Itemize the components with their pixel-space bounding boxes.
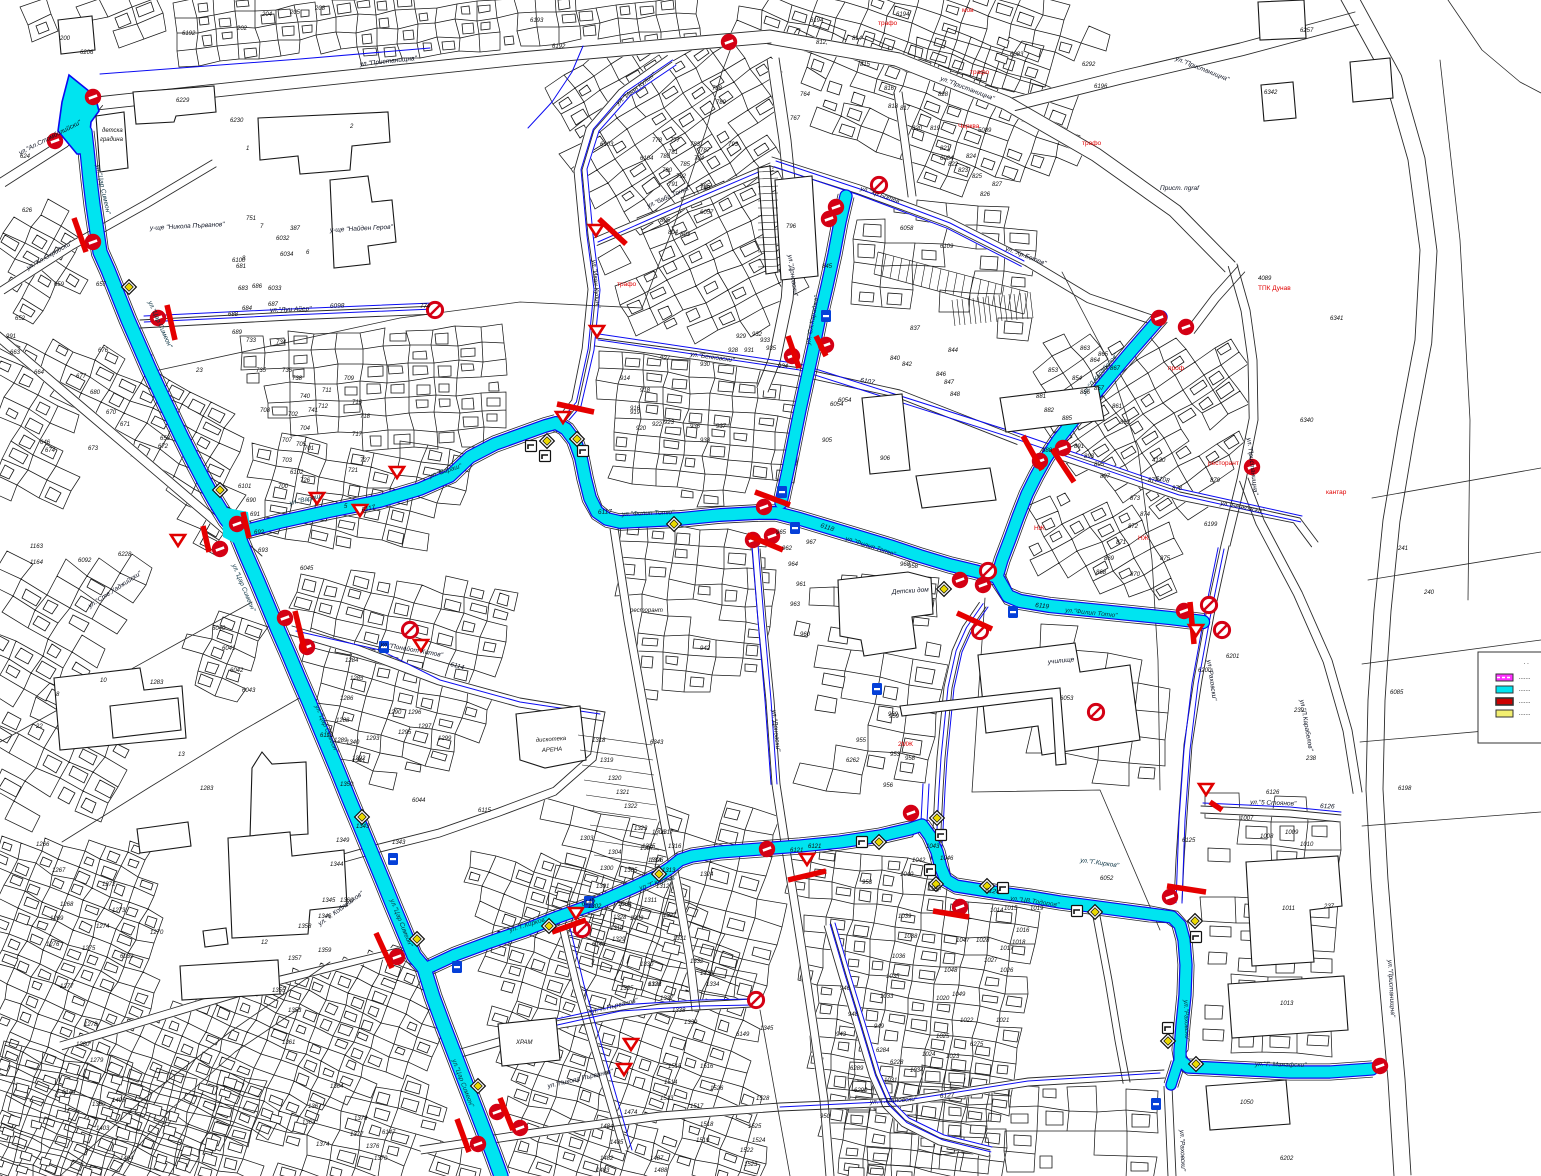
svg-text:6196: 6196 [1094, 84, 1108, 90]
svg-text:1482: 1482 [600, 1156, 614, 1162]
svg-text:820: 820 [912, 126, 923, 132]
svg-text:6284: 6284 [876, 1048, 890, 1054]
svg-text:200: 200 [59, 36, 71, 42]
svg-text:680: 680 [90, 390, 101, 396]
svg-text:741: 741 [308, 408, 318, 414]
svg-text:6230: 6230 [230, 118, 244, 124]
svg-text:Черква: Черква [958, 123, 980, 130]
svg-text:788: 788 [712, 86, 723, 92]
svg-text:.......: ....... [1519, 711, 1531, 717]
svg-text:4089: 4089 [1258, 276, 1272, 282]
svg-text:664: 664 [34, 370, 45, 376]
svg-text:1403: 1403 [96, 1126, 110, 1132]
svg-text:6343: 6343 [650, 740, 664, 746]
svg-text:824: 824 [966, 154, 977, 160]
svg-text:942: 942 [700, 646, 711, 652]
svg-text:774: 774 [420, 304, 431, 310]
svg-text:927: 927 [660, 356, 671, 362]
svg-text:1326: 1326 [650, 858, 664, 864]
svg-text:241: 241 [1397, 546, 1408, 552]
svg-text:1283: 1283 [200, 786, 214, 792]
svg-text:6200: 6200 [1198, 668, 1212, 674]
svg-text:6041: 6041 [222, 646, 235, 652]
svg-text:1405: 1405 [112, 1098, 126, 1104]
svg-text:733: 733 [246, 338, 257, 344]
svg-text:1485: 1485 [610, 1140, 624, 1146]
svg-text:2МЖ: 2МЖ [898, 741, 913, 748]
svg-text:751: 751 [246, 216, 256, 222]
svg-text:1523: 1523 [744, 1162, 758, 1168]
svg-text:821: 821 [940, 146, 950, 152]
svg-text:1: 1 [246, 146, 249, 152]
svg-text:848: 848 [950, 392, 961, 398]
svg-text:692: 692 [254, 530, 265, 536]
svg-text:1330: 1330 [640, 962, 654, 968]
svg-text:893: 893 [1084, 454, 1095, 460]
svg-text:677: 677 [76, 374, 87, 380]
svg-text:879: 879 [1210, 478, 1221, 484]
svg-text:870: 870 [1130, 572, 1141, 578]
svg-text:6098: 6098 [330, 302, 345, 310]
svg-text:793: 793 [728, 142, 739, 148]
svg-text:1329: 1329 [612, 937, 626, 943]
svg-text:1332: 1332 [690, 959, 704, 965]
svg-text:1046: 1046 [940, 856, 954, 862]
svg-text:1526: 1526 [710, 1086, 724, 1092]
svg-text:Прист. пgraf: Прист. пgraf [1160, 185, 1200, 192]
svg-text:740: 740 [300, 394, 311, 400]
svg-text:1274: 1274 [96, 924, 110, 930]
svg-text:6039: 6039 [120, 954, 134, 960]
svg-text:819: 819 [930, 126, 941, 132]
svg-text:673: 673 [88, 446, 99, 452]
svg-text:1519: 1519 [696, 1138, 710, 1144]
svg-text:1284: 1284 [345, 658, 359, 664]
svg-text:1318: 1318 [592, 738, 606, 744]
svg-text:778: 778 [652, 138, 663, 144]
svg-text:933: 933 [760, 338, 771, 344]
svg-text:764: 764 [800, 92, 811, 98]
svg-text:716: 716 [352, 400, 363, 406]
svg-text:239: 239 [1293, 708, 1305, 714]
svg-text:818: 818 [888, 104, 899, 110]
svg-text:738: 738 [292, 376, 303, 382]
svg-text:1377: 1377 [350, 1132, 364, 1138]
svg-text:6102: 6102 [290, 470, 304, 476]
svg-text:803: 803 [680, 232, 691, 238]
svg-text:967: 967 [806, 540, 817, 546]
svg-text:градина: градина [100, 137, 124, 143]
svg-text:22: 22 [35, 724, 43, 730]
svg-text:734: 734 [276, 340, 287, 346]
svg-text:1349: 1349 [336, 838, 350, 844]
svg-text:6292: 6292 [1082, 62, 1096, 68]
svg-text:874: 874 [1140, 512, 1151, 518]
svg-text:ул."Г. Манафски": ул."Г. Манафски" [1254, 1061, 1307, 1069]
svg-text:1308: 1308 [618, 902, 632, 908]
svg-text:6085: 6085 [1390, 690, 1404, 696]
svg-text:1011: 1011 [1282, 906, 1295, 912]
svg-text:6125: 6125 [1182, 838, 1196, 844]
svg-text:1376: 1376 [366, 1144, 380, 1150]
svg-text:1273: 1273 [112, 908, 126, 914]
svg-text:6290: 6290 [854, 1088, 868, 1094]
svg-text:1353: 1353 [288, 1008, 302, 1014]
svg-text:6127: 6127 [940, 1092, 955, 1100]
svg-text:1038: 1038 [904, 934, 918, 940]
svg-text:867: 867 [1110, 366, 1121, 372]
svg-text:918: 918 [640, 388, 651, 394]
svg-text:1343: 1343 [356, 824, 370, 830]
svg-text:238: 238 [1305, 756, 1317, 762]
svg-text:1022: 1022 [960, 1018, 974, 1024]
svg-text:1025: 1025 [936, 1034, 950, 1040]
svg-text:6341: 6341 [1330, 316, 1343, 322]
svg-text:931: 931 [744, 348, 754, 354]
svg-text:1010: 1010 [1300, 842, 1314, 848]
svg-text:205: 205 [289, 10, 301, 16]
svg-text:НЖ: НЖ [1034, 525, 1045, 532]
svg-text:871: 871 [1116, 540, 1126, 546]
svg-text:905: 905 [822, 438, 833, 444]
svg-text:1015: 1015 [1004, 906, 1018, 912]
svg-text:1367: 1367 [308, 1104, 322, 1110]
svg-text:1043: 1043 [926, 844, 940, 850]
svg-text:6044: 6044 [412, 798, 426, 804]
svg-text:1360: 1360 [340, 898, 354, 904]
svg-text:1295: 1295 [398, 730, 412, 736]
svg-text:6228: 6228 [118, 552, 132, 558]
svg-text:6058: 6058 [900, 226, 914, 232]
svg-text:.......: ....... [1519, 675, 1531, 681]
svg-text:387: 387 [290, 226, 301, 232]
svg-text:6053: 6053 [1060, 696, 1074, 702]
svg-text:626: 626 [22, 208, 33, 214]
svg-text:937: 937 [716, 424, 727, 430]
svg-text:856: 856 [1080, 390, 1091, 396]
svg-text:878: 878 [1172, 486, 1183, 492]
svg-text:6144: 6144 [62, 1090, 76, 1096]
svg-text:671: 671 [120, 422, 130, 428]
svg-text:1021: 1021 [996, 1018, 1009, 1024]
svg-text:1325: 1325 [642, 844, 656, 850]
svg-text:1338: 1338 [672, 1008, 686, 1014]
svg-text:1518: 1518 [700, 1122, 714, 1128]
svg-text:1322: 1322 [624, 804, 638, 810]
svg-text:6034: 6034 [280, 252, 294, 258]
svg-text:1049: 1049 [952, 992, 966, 998]
svg-text:6289: 6289 [850, 1066, 864, 1072]
svg-text:1296: 1296 [408, 710, 422, 716]
svg-text:1522: 1522 [740, 1148, 754, 1154]
svg-text:1378: 1378 [354, 1116, 368, 1122]
svg-text:963: 963 [790, 602, 801, 608]
svg-text:1404: 1404 [120, 1156, 134, 1162]
svg-text:1327: 1327 [663, 913, 677, 919]
svg-text:646: 646 [40, 440, 51, 446]
svg-text:1474: 1474 [624, 1110, 638, 1116]
svg-text:6192: 6192 [552, 44, 566, 50]
svg-text:950: 950 [820, 1114, 831, 1120]
svg-text:796: 796 [786, 224, 797, 230]
svg-text:865: 865 [1098, 352, 1109, 358]
svg-text:1303: 1303 [580, 836, 594, 842]
svg-text:1313: 1313 [662, 868, 676, 874]
svg-text:717: 717 [352, 432, 363, 438]
svg-text:6257: 6257 [1300, 28, 1314, 34]
svg-text:1016: 1016 [1016, 928, 1030, 934]
svg-text:1039: 1039 [898, 914, 912, 920]
svg-text:1488: 1488 [654, 1168, 668, 1174]
svg-text:мов: мов [962, 7, 974, 14]
svg-text:ресторант: ресторант [629, 608, 663, 614]
svg-text:1350: 1350 [340, 782, 354, 788]
svg-text:1266: 1266 [36, 842, 50, 848]
svg-text:1050: 1050 [1240, 1100, 1254, 1106]
svg-text:815: 815 [860, 62, 871, 68]
svg-text:трафо: трафо [970, 69, 990, 76]
svg-text:6101: 6101 [238, 484, 251, 490]
svg-text:795: 795 [700, 186, 711, 192]
svg-text:1343: 1343 [392, 840, 406, 846]
svg-text:1364: 1364 [330, 1084, 344, 1090]
svg-text:1031: 1031 [884, 1078, 897, 1084]
svg-text:6057: 6057 [700, 210, 714, 216]
svg-text:938: 938 [700, 438, 711, 444]
svg-text:трафо: трафо [1082, 140, 1102, 147]
svg-text:1036: 1036 [892, 954, 906, 960]
svg-text:1316: 1316 [668, 844, 682, 850]
svg-text:817: 817 [900, 106, 911, 112]
svg-text:6121: 6121 [808, 844, 821, 850]
svg-text:6340: 6340 [1300, 418, 1314, 424]
svg-text:5089: 5089 [978, 128, 992, 134]
svg-text:958: 958 [905, 756, 916, 762]
svg-text:823: 823 [958, 168, 969, 174]
svg-text:1374: 1374 [316, 1142, 330, 1148]
svg-text:961: 961 [796, 582, 806, 588]
svg-text:кантар: кантар [1326, 489, 1347, 496]
svg-text:1293: 1293 [366, 736, 380, 742]
svg-text:875: 875 [1160, 556, 1171, 562]
svg-text:6092: 6092 [78, 558, 92, 564]
svg-text:965: 965 [776, 530, 787, 536]
svg-text:6121: 6121 [790, 848, 803, 854]
svg-text:1275: 1275 [82, 946, 96, 952]
svg-text:1302: 1302 [588, 904, 602, 910]
svg-text:1300: 1300 [600, 866, 614, 872]
svg-text:1310: 1310 [610, 926, 624, 932]
svg-text:1345: 1345 [322, 898, 336, 904]
svg-text:6126: 6126 [1266, 790, 1280, 796]
svg-text:991: 991 [6, 334, 16, 340]
svg-text:672: 672 [158, 444, 169, 450]
svg-text:790: 790 [662, 168, 673, 174]
svg-text:6032: 6032 [276, 236, 290, 242]
svg-text:704: 704 [300, 426, 311, 432]
svg-text:1341: 1341 [352, 758, 365, 764]
svg-text:853: 853 [1048, 368, 1059, 374]
svg-text:1331: 1331 [673, 936, 686, 942]
svg-text:721: 721 [348, 468, 358, 474]
svg-text:869: 869 [1104, 556, 1115, 562]
svg-text:1277: 1277 [60, 984, 74, 990]
svg-text:1321: 1321 [616, 790, 629, 796]
svg-text:683: 683 [238, 286, 249, 292]
svg-text:946: 946 [840, 986, 851, 992]
svg-text:840: 840 [890, 356, 901, 362]
svg-text:1009: 1009 [1285, 830, 1299, 836]
svg-text:676: 676 [98, 348, 109, 354]
svg-text:1024: 1024 [922, 1052, 936, 1058]
svg-text:891: 891 [1074, 444, 1084, 450]
svg-text:735: 735 [256, 368, 267, 374]
svg-text:787: 787 [700, 148, 711, 154]
svg-text:845: 845 [822, 264, 833, 270]
svg-text:1007: 1007 [1240, 816, 1254, 822]
svg-text:1320: 1320 [608, 776, 622, 782]
svg-text:826: 826 [980, 192, 991, 198]
svg-text:863: 863 [1080, 346, 1091, 352]
svg-text:955: 955 [856, 738, 867, 744]
svg-text:1040: 1040 [900, 872, 914, 878]
svg-text:688: 688 [228, 312, 239, 318]
svg-text:1487: 1487 [650, 1156, 664, 1162]
svg-text:6043: 6043 [242, 688, 256, 694]
svg-text:6117: 6117 [598, 509, 613, 516]
svg-text:1045: 1045 [928, 886, 942, 892]
svg-text:1513: 1513 [660, 1096, 674, 1102]
svg-text:1359: 1359 [318, 948, 332, 954]
svg-text:930: 930 [700, 362, 711, 368]
svg-text:13: 13 [178, 752, 185, 758]
svg-text:969: 969 [888, 712, 899, 718]
svg-text:1297: 1297 [418, 724, 432, 730]
svg-text:624: 624 [20, 154, 31, 160]
svg-text:1048: 1048 [944, 968, 958, 974]
svg-text:6045: 6045 [300, 566, 314, 572]
svg-text:707: 707 [282, 438, 293, 444]
svg-text:1288: 1288 [336, 718, 350, 724]
svg-text:827: 827 [992, 182, 1003, 188]
svg-text:837: 837 [910, 326, 921, 332]
svg-text:1339: 1339 [684, 1020, 698, 1026]
svg-text:1483: 1483 [596, 1168, 610, 1174]
svg-text:1380: 1380 [92, 1102, 106, 1108]
svg-text:1027: 1027 [984, 958, 998, 964]
svg-text:726: 726 [300, 478, 311, 484]
svg-text:791: 791 [668, 182, 678, 188]
svg-text:1355: 1355 [272, 988, 286, 994]
svg-text:6198: 6198 [1398, 786, 1412, 792]
svg-text:1019: 1019 [1030, 906, 1044, 912]
svg-text:6104: 6104 [640, 156, 654, 162]
svg-text:914: 914 [620, 376, 631, 382]
svg-text:1023: 1023 [946, 1054, 960, 1060]
svg-text:1026: 1026 [1000, 968, 1014, 974]
svg-text:864: 864 [1090, 358, 1101, 364]
svg-text:1276: 1276 [46, 942, 60, 948]
svg-text:718: 718 [360, 414, 371, 420]
svg-text:6103: 6103 [600, 142, 614, 148]
svg-text:6275: 6275 [970, 1042, 984, 1048]
svg-text:1345: 1345 [760, 1026, 774, 1032]
svg-text:6193: 6193 [530, 18, 544, 24]
svg-text:690: 690 [246, 498, 257, 504]
svg-text:6202: 6202 [1280, 1156, 1294, 1162]
svg-text:6262: 6262 [846, 758, 860, 764]
svg-text:1524: 1524 [752, 1138, 766, 1144]
svg-text:934: 934 [778, 364, 789, 370]
svg-text:687: 687 [268, 302, 279, 308]
svg-text:785: 785 [680, 162, 691, 168]
svg-text:1279: 1279 [90, 1058, 104, 1064]
svg-text:1334: 1334 [706, 982, 720, 988]
svg-text:1309: 1309 [630, 916, 644, 922]
svg-text:6199: 6199 [1204, 522, 1218, 528]
svg-text:825: 825 [972, 174, 983, 180]
svg-text:956: 956 [883, 783, 894, 789]
svg-text:686: 686 [252, 284, 263, 290]
svg-text:804: 804 [668, 230, 679, 236]
svg-text:ул."Раховски": ул."Раховски" [1178, 1129, 1186, 1172]
svg-text:854: 854 [1072, 376, 1083, 382]
svg-text:962: 962 [782, 546, 793, 552]
svg-text:702: 702 [288, 412, 299, 418]
svg-text:проф: проф [1168, 365, 1185, 372]
svg-text:670: 670 [106, 410, 117, 416]
svg-text:868: 868 [1096, 570, 1107, 576]
svg-text:1018: 1018 [1012, 940, 1026, 946]
svg-text:919: 919 [630, 410, 641, 416]
svg-text:689: 689 [232, 330, 243, 336]
svg-text:674: 674 [45, 448, 56, 454]
svg-text:882: 882 [1044, 408, 1055, 414]
svg-text:1283: 1283 [150, 680, 164, 686]
svg-text:953: 953 [890, 752, 901, 758]
svg-text:700: 700 [278, 484, 289, 490]
svg-text:6149: 6149 [736, 1032, 750, 1038]
svg-text:703: 703 [282, 458, 293, 464]
svg-text:897: 897 [1100, 474, 1111, 480]
svg-text:923: 923 [664, 420, 675, 426]
svg-text:6147: 6147 [382, 1130, 396, 1136]
svg-text:трафо: трафо [878, 20, 898, 27]
svg-text:953: 953 [862, 880, 873, 886]
svg-text:23: 23 [195, 368, 203, 374]
svg-text:948: 948 [848, 1012, 859, 1018]
svg-text:6229: 6229 [176, 98, 190, 104]
svg-text:936: 936 [690, 424, 701, 430]
svg-text:1370: 1370 [374, 1156, 388, 1162]
svg-text:НЖ: НЖ [1138, 535, 1149, 542]
svg-text:792: 792 [676, 174, 687, 180]
svg-text:1290: 1290 [388, 710, 402, 716]
svg-text:1286: 1286 [340, 696, 354, 702]
svg-text:828: 828 [938, 92, 949, 98]
svg-text:1008: 1008 [1260, 834, 1274, 840]
svg-text:895: 895 [1094, 462, 1105, 468]
svg-text:трафо: трафо [617, 281, 637, 288]
svg-text:1301: 1301 [596, 884, 609, 890]
svg-text:6033: 6033 [268, 286, 282, 292]
svg-text:6113: 6113 [320, 733, 334, 739]
svg-text:1335: 1335 [620, 986, 634, 992]
svg-text:847: 847 [944, 380, 955, 386]
svg-text:6054: 6054 [830, 402, 844, 408]
svg-text:885: 885 [1062, 416, 1073, 422]
svg-text:1344: 1344 [330, 862, 344, 868]
